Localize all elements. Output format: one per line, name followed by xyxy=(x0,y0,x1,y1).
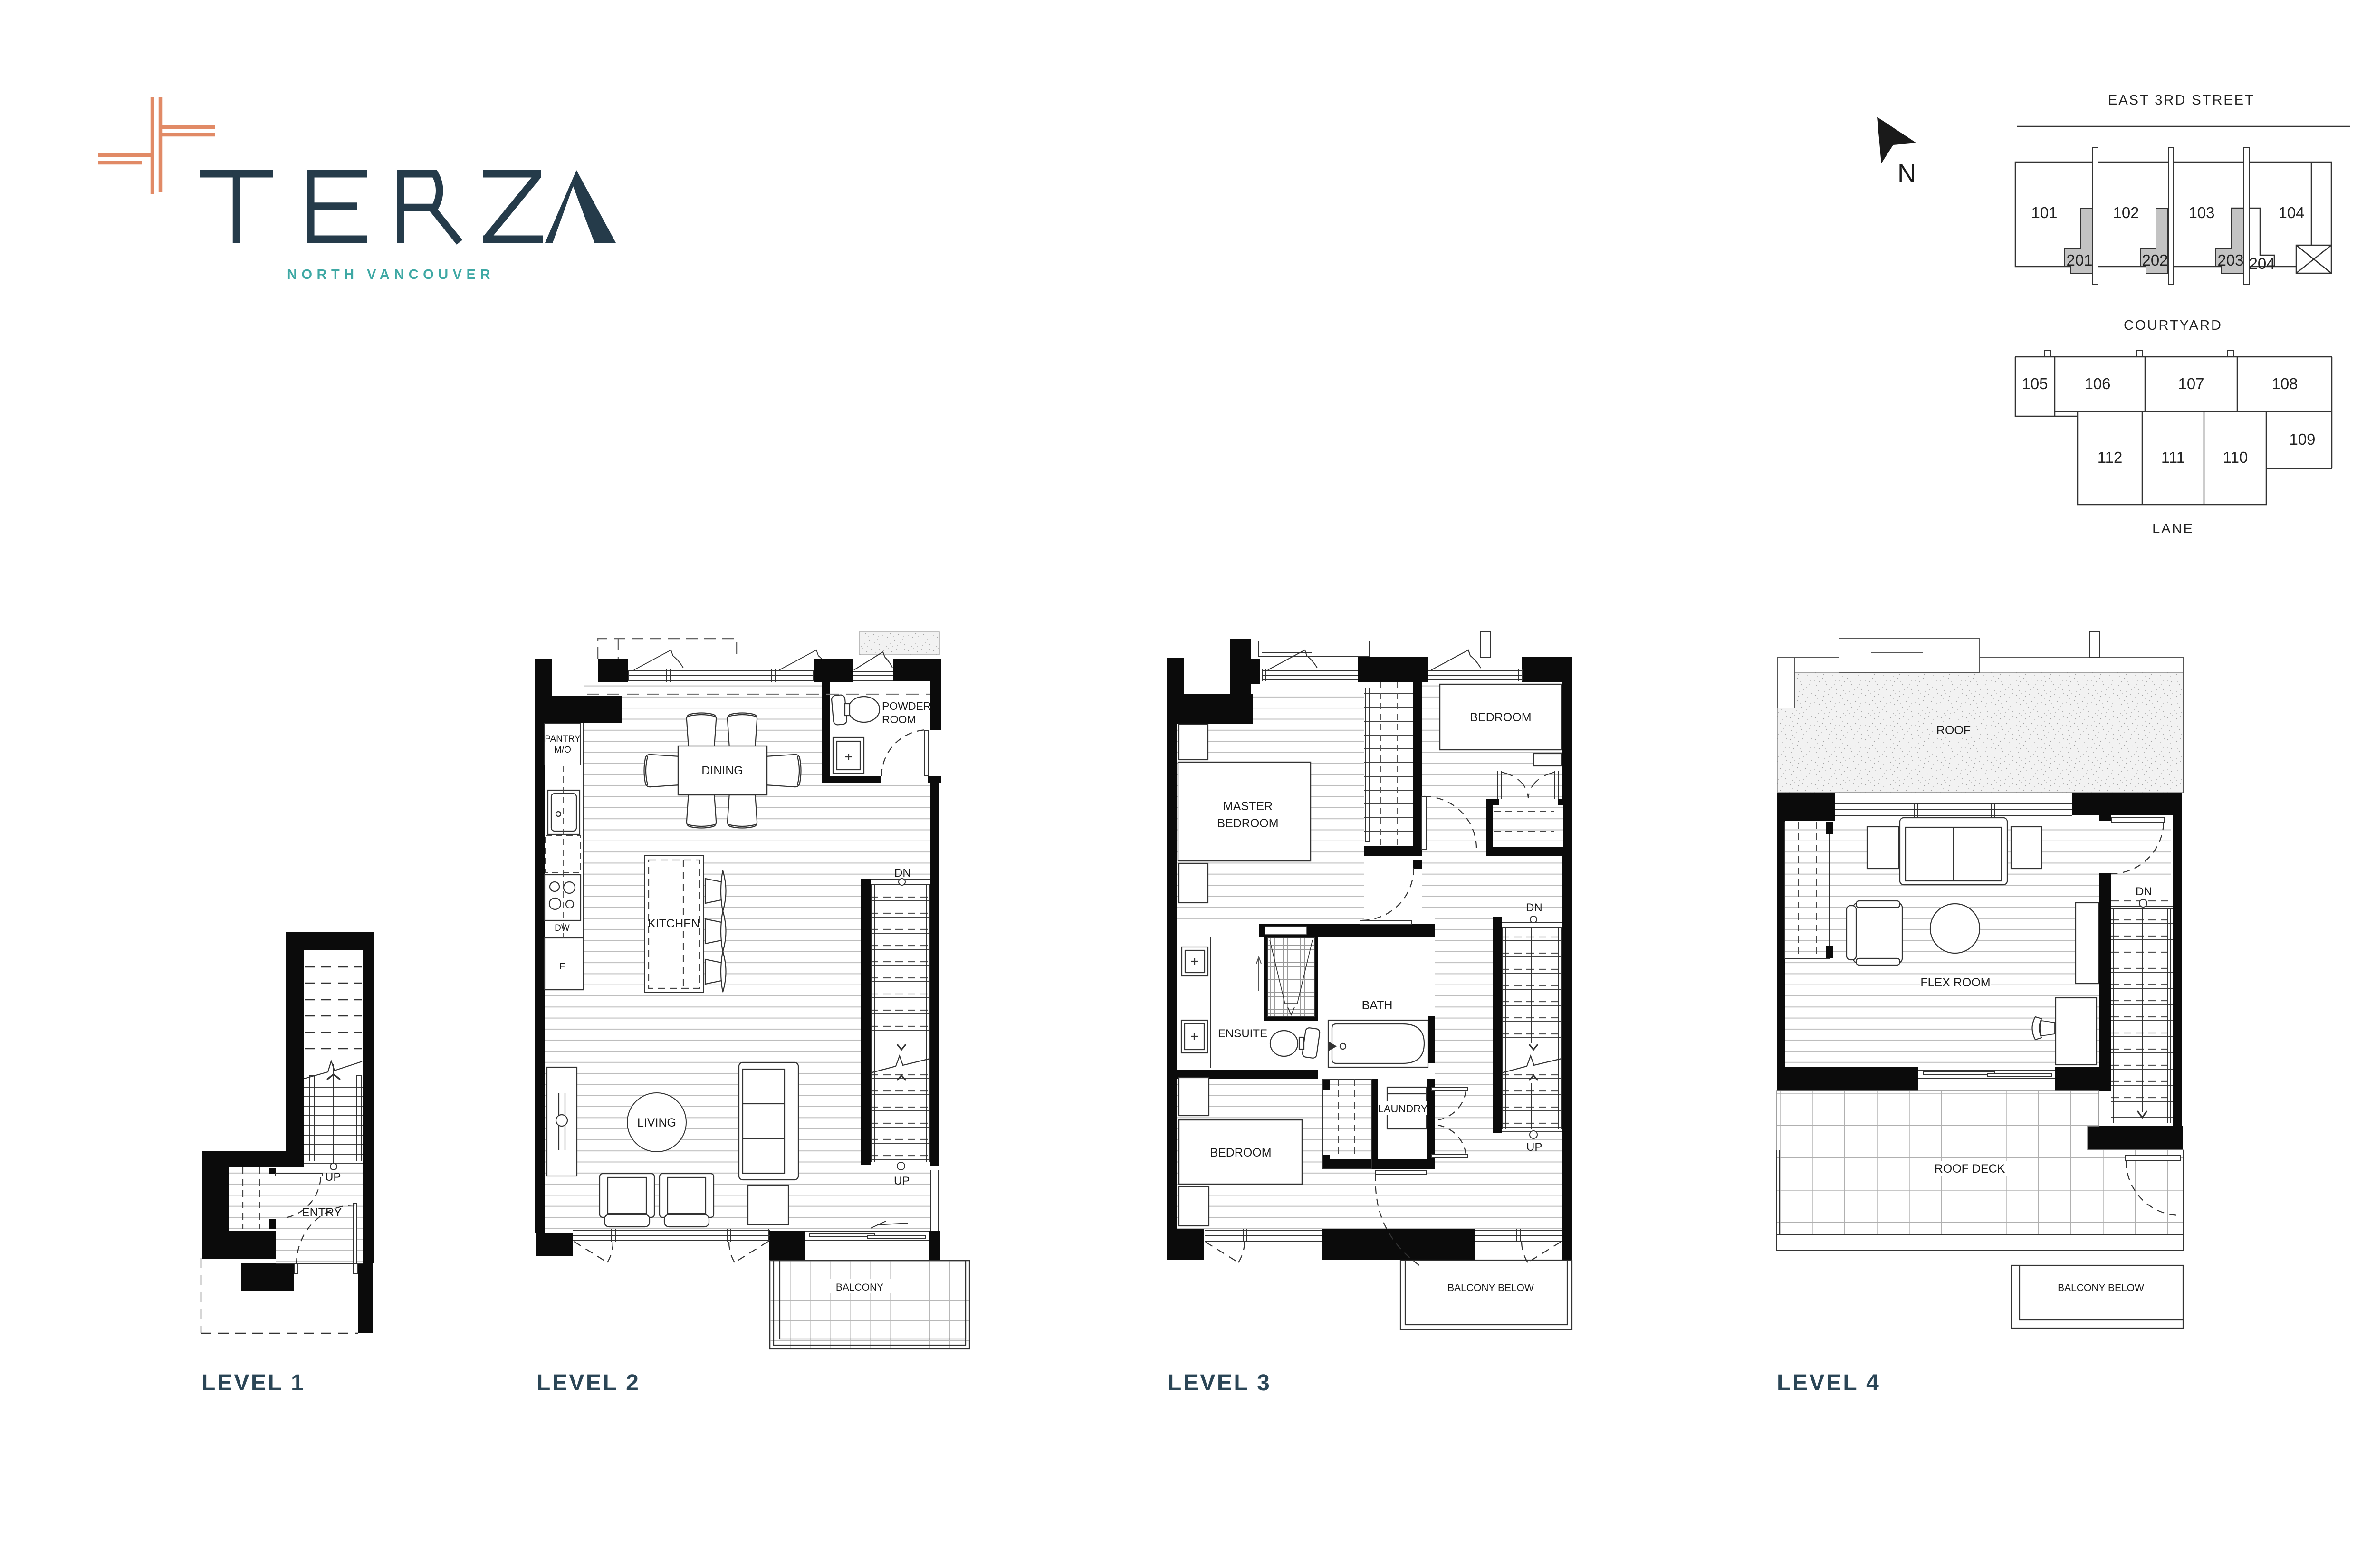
svg-text:ROOF DECK: ROOF DECK xyxy=(1935,1162,2005,1176)
svg-text:BALCONY: BALCONY xyxy=(836,1282,883,1293)
svg-text:108: 108 xyxy=(2271,375,2298,392)
svg-text:201: 201 xyxy=(2066,251,2092,269)
svg-text:UP: UP xyxy=(894,1175,910,1187)
svg-text:DINING: DINING xyxy=(701,764,743,777)
svg-text:BEDROOM: BEDROOM xyxy=(1210,1146,1271,1159)
svg-text:102: 102 xyxy=(2113,204,2139,221)
svg-text:BALCONY BELOW: BALCONY BELOW xyxy=(2058,1282,2144,1293)
svg-text:111: 111 xyxy=(2161,449,2185,466)
svg-text:DW: DW xyxy=(555,923,570,933)
svg-text:BALCONY BELOW: BALCONY BELOW xyxy=(1447,1282,1534,1293)
svg-text:105: 105 xyxy=(2022,375,2048,392)
svg-text:ENTRY: ENTRY xyxy=(302,1206,342,1219)
svg-text:106: 106 xyxy=(2084,375,2110,392)
svg-text:MASTER: MASTER xyxy=(1223,800,1273,813)
svg-text:F: F xyxy=(559,962,565,972)
svg-text:DN: DN xyxy=(894,867,911,880)
svg-text:109: 109 xyxy=(2289,430,2315,448)
svg-text:110: 110 xyxy=(2223,449,2248,466)
svg-text:ROOM: ROOM xyxy=(882,713,916,726)
svg-text:112: 112 xyxy=(2098,449,2123,466)
svg-text:DN: DN xyxy=(1526,901,1542,914)
svg-text:204: 204 xyxy=(2249,255,2275,272)
svg-text:107: 107 xyxy=(2178,375,2204,392)
svg-text:EAST 3RD STREET: EAST 3RD STREET xyxy=(2108,93,2255,108)
svg-text:N: N xyxy=(1897,159,1916,188)
svg-text:ROOF: ROOF xyxy=(1936,724,1971,737)
svg-text:LEVEL 4: LEVEL 4 xyxy=(1777,1370,1880,1396)
svg-text:M/O: M/O xyxy=(554,745,571,755)
svg-text:COURTYARD: COURTYARD xyxy=(2124,318,2223,333)
svg-text:PANTRY: PANTRY xyxy=(545,734,581,744)
svg-text:104: 104 xyxy=(2278,204,2304,221)
svg-text:LEVEL 3: LEVEL 3 xyxy=(1168,1370,1271,1396)
svg-text:LAUNDRY: LAUNDRY xyxy=(1378,1103,1428,1115)
svg-text:ENSUITE: ENSUITE xyxy=(1218,1027,1267,1040)
svg-text:KITCHEN: KITCHEN xyxy=(648,917,700,930)
svg-text:POWDER: POWDER xyxy=(882,700,931,712)
svg-text:103: 103 xyxy=(2188,204,2214,221)
svg-text:FLEX ROOM: FLEX ROOM xyxy=(1920,976,1990,989)
svg-text:LEVEL 2: LEVEL 2 xyxy=(537,1370,640,1396)
svg-text:BEDROOM: BEDROOM xyxy=(1217,817,1278,830)
svg-text:UP: UP xyxy=(1526,1141,1542,1154)
svg-text:BATH: BATH xyxy=(1362,999,1393,1012)
svg-text:101: 101 xyxy=(2031,204,2057,221)
svg-text:LEVEL 1: LEVEL 1 xyxy=(201,1370,305,1396)
svg-text:DN: DN xyxy=(2136,885,2152,898)
svg-text:UP: UP xyxy=(325,1171,341,1184)
svg-text:LIVING: LIVING xyxy=(637,1116,676,1129)
svg-text:BEDROOM: BEDROOM xyxy=(1470,711,1531,724)
svg-text:LANE: LANE xyxy=(2152,521,2194,536)
svg-text:202: 202 xyxy=(2142,251,2168,269)
svg-text:NORTH VANCOUVER: NORTH VANCOUVER xyxy=(287,267,495,282)
svg-text:203: 203 xyxy=(2217,251,2243,269)
